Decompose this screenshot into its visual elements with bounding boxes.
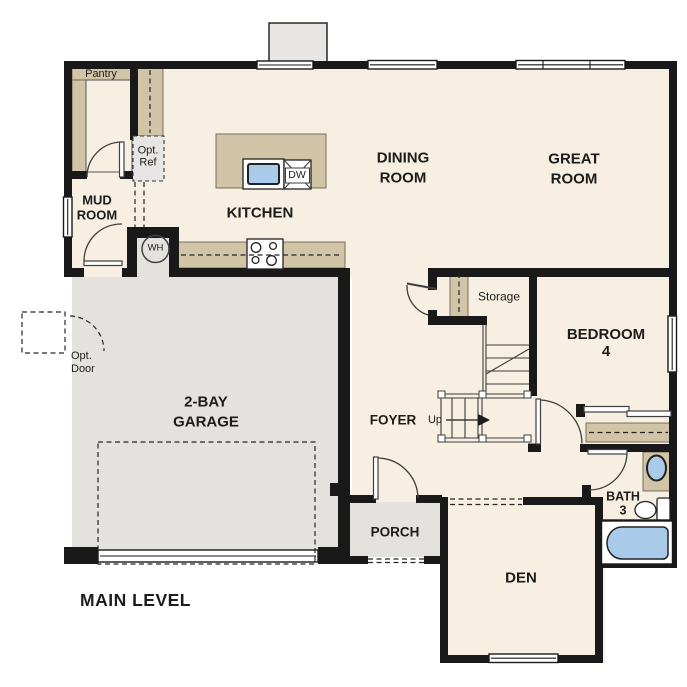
room-label-mud-room: MUD ROOM xyxy=(77,193,117,222)
room-label-kitchen: KITCHEN xyxy=(227,206,294,223)
bathtub xyxy=(601,521,673,565)
fireplace-chimney xyxy=(269,23,327,63)
opt-door-outline xyxy=(22,312,65,353)
room-label-bedroom-4: BEDROOM 4 xyxy=(566,327,647,361)
stove xyxy=(247,239,283,269)
floor-plan: Pantry Opt. Ref MUD ROOM KITCHEN DINING … xyxy=(0,0,687,687)
wall-den-left xyxy=(440,497,448,663)
wall-porch-top-left xyxy=(348,495,376,503)
dishwasher-label: DW xyxy=(288,170,306,182)
wall-stair-east xyxy=(529,268,537,396)
wall-bath-west-stub xyxy=(582,485,591,499)
annotation-opt-door: Opt. Door xyxy=(71,350,95,375)
wall-exterior-right xyxy=(669,61,677,568)
annotation-up: Up xyxy=(428,414,442,426)
wall-porch-bottom-left xyxy=(334,556,368,564)
wall-greatroom-south xyxy=(428,268,677,277)
wall-den-top xyxy=(523,497,603,505)
dining-window xyxy=(368,61,437,70)
wall-step-stub xyxy=(330,483,340,496)
wall-garage-right xyxy=(338,268,350,564)
garage-door-opening xyxy=(98,550,318,562)
room-label-dining-room: DINING ROOM xyxy=(377,149,430,188)
wall-bedroom-door-stub xyxy=(528,444,541,453)
wall-nook-right xyxy=(169,227,179,277)
wall-storage-south xyxy=(428,316,487,325)
wall-exterior-left xyxy=(64,61,72,277)
room-label-foyer: FOYER xyxy=(370,412,417,427)
pantry-shelf-left xyxy=(72,80,86,173)
den-window xyxy=(489,654,558,663)
wall-garage-bottom-left xyxy=(64,547,98,564)
room-label-great-room: GREAT ROOM xyxy=(548,150,599,189)
wall-porch-top-right xyxy=(416,495,442,503)
wall-garage-top-1 xyxy=(64,268,84,277)
room-label-den: DEN xyxy=(505,571,537,588)
vanity-sink xyxy=(647,456,666,481)
island-sink xyxy=(243,159,284,189)
room-label-storage: Storage xyxy=(478,290,520,303)
room-label-bath-3: BATH 3 xyxy=(606,490,640,519)
wall-pantry-south-left xyxy=(64,171,87,179)
room-label-porch: PORCH xyxy=(371,524,420,539)
annotation-opt-ref: Opt. Ref xyxy=(138,145,159,170)
wall-pantry-kitchen xyxy=(130,61,138,140)
room-label-garage: 2-BAY GARAGE xyxy=(173,393,239,432)
room-label-pantry: Pantry xyxy=(85,68,117,80)
great-room-triple-window xyxy=(516,61,625,70)
bedroom-window xyxy=(668,316,677,372)
level-title: MAIN LEVEL xyxy=(80,590,191,610)
fireplace-window xyxy=(257,61,313,69)
water-heater-label: WH xyxy=(148,244,164,255)
mud-room-window xyxy=(64,197,73,237)
